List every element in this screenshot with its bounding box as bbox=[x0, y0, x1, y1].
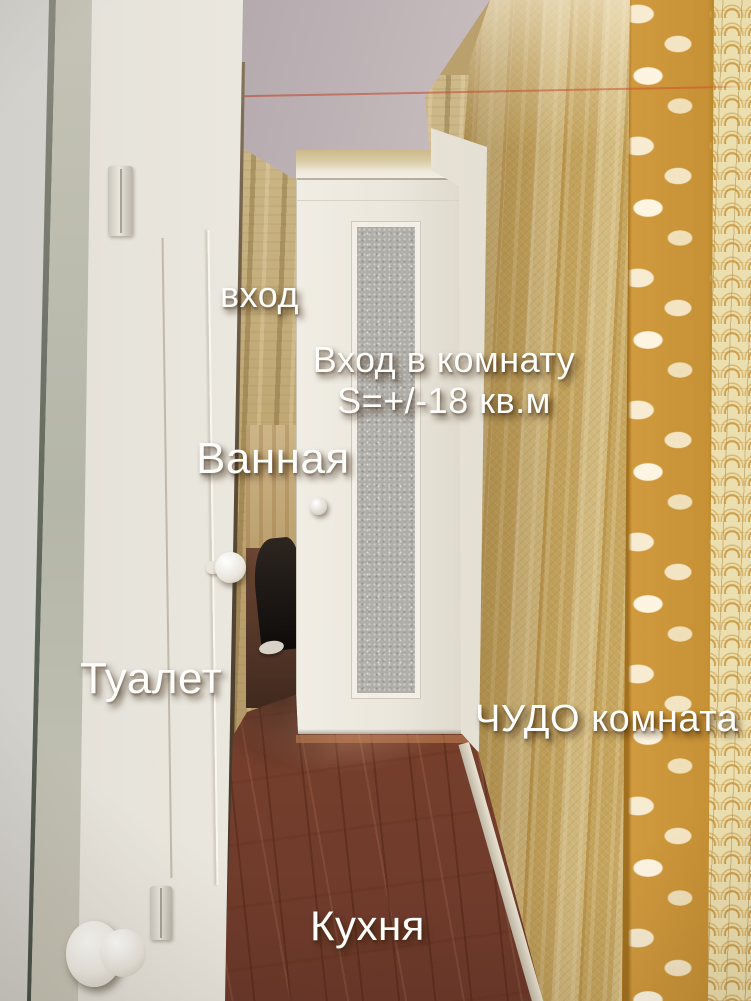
label-entrance: вход bbox=[220, 274, 299, 315]
label-room-entrance-line1: Вход в комнату bbox=[298, 339, 590, 380]
toilet-door-knob bbox=[215, 552, 246, 583]
door-hinge-bottom bbox=[150, 886, 172, 940]
label-room-entrance-line2: S=+/-18 кв.м bbox=[298, 380, 590, 421]
room-door-knob bbox=[310, 498, 327, 515]
label-bathroom: Ванная bbox=[196, 434, 350, 484]
door-hinge-top bbox=[108, 166, 133, 236]
label-room-entrance: Вход в комнату S=+/-18 кв.м bbox=[298, 339, 590, 421]
bathroom-door-knob-ball bbox=[100, 929, 146, 977]
label-toilet: Туалет bbox=[80, 654, 222, 704]
hallway-photo: вход Вход в комнату S=+/-18 кв.м Ванная … bbox=[0, 0, 751, 1001]
label-miracle-room: ЧУДО комната bbox=[475, 698, 738, 741]
frosted-glass-panel bbox=[352, 222, 420, 698]
label-kitchen: Кухня bbox=[310, 902, 425, 950]
